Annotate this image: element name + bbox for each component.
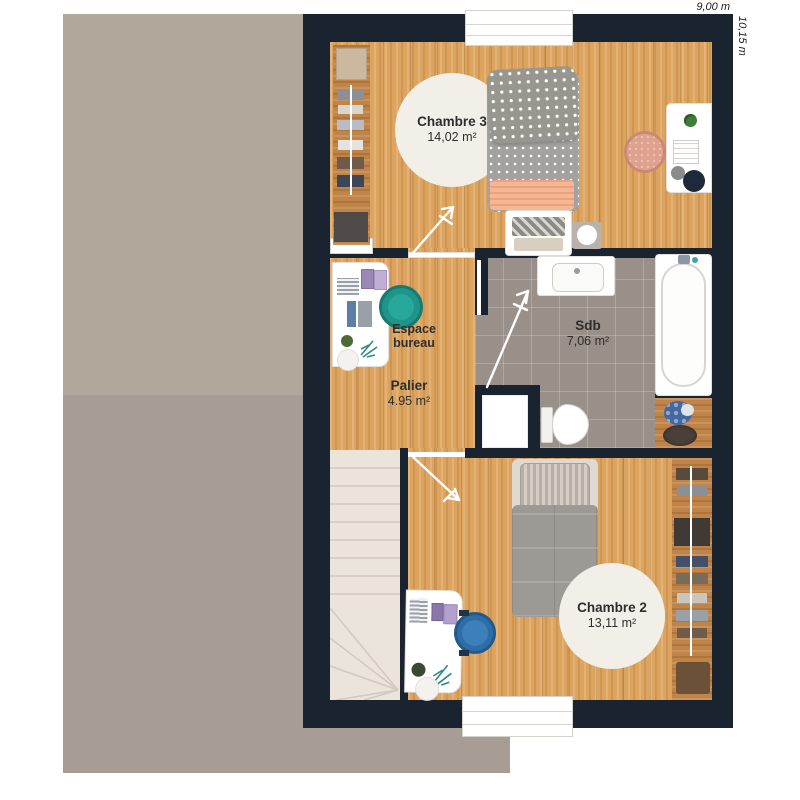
dimension-depth-label: 10,15 m: [736, 16, 748, 56]
roof-area-lower: [63, 395, 303, 773]
roof-area-upper: [63, 14, 303, 395]
door-swing-arrows: [303, 14, 733, 728]
dimension-width-label: 9,00 m: [696, 1, 730, 13]
floor-plan-image: Chambre 3 14,02 m²: [0, 0, 800, 800]
